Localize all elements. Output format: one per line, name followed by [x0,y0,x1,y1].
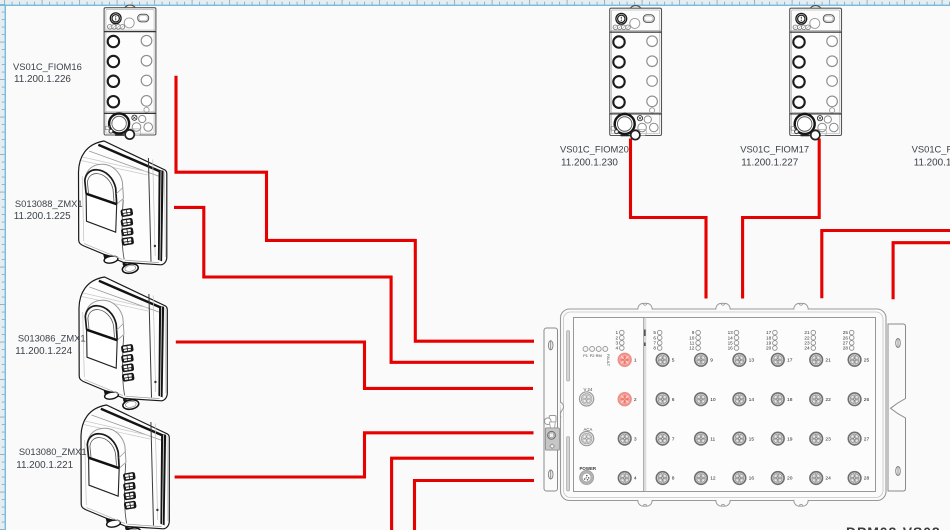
svg-text:P1: P1 [583,353,588,358]
svg-text:6: 6 [672,397,675,403]
svg-text:15: 15 [749,436,755,442]
svg-text:14: 14 [749,397,755,403]
svg-text:VS01C_FIOM20: VS01C_FIOM20 [560,144,629,155]
svg-text:11.200.1.225: 11.200.1.225 [14,211,71,222]
svg-text:1: 1 [634,358,637,364]
svg-text:26: 26 [864,397,870,403]
svg-text:11.200.1.230: 11.200.1.230 [561,158,618,169]
svg-text:20: 20 [766,346,772,351]
svg-text:S013088_ZMX1: S013088_ZMX1 [15,198,83,209]
svg-text:8: 8 [653,346,656,351]
svg-text:28: 28 [843,346,849,351]
svg-text:24: 24 [825,476,831,482]
svg-text:8: 8 [672,476,675,482]
svg-text:16: 16 [728,346,734,351]
svg-text:21: 21 [825,358,831,364]
svg-text:FAULT: FAULT [606,354,611,367]
svg-text:11.200.1.221: 11.200.1.221 [16,460,73,471]
svg-text:27: 27 [864,436,870,442]
svg-text:DPM08-VS08: DPM08-VS08 [846,524,941,530]
svg-text:5: 5 [672,358,675,364]
svg-text:13: 13 [749,358,755,364]
svg-text:11.200.1.227: 11.200.1.227 [741,158,798,169]
svg-text:2: 2 [634,397,637,403]
svg-text:11.200.1.228: 11.200.1.228 [914,158,950,169]
svg-text:17: 17 [787,358,793,364]
svg-text:11: 11 [710,436,715,442]
svg-text:16: 16 [749,476,755,482]
svg-text:28: 28 [864,476,870,482]
svg-text:22: 22 [825,397,831,403]
svg-text:S013080_ZMX1: S013080_ZMX1 [19,446,87,457]
svg-text:7: 7 [672,436,675,442]
svg-text:24: 24 [804,346,810,351]
svg-text:9: 9 [710,358,713,364]
svg-text:20: 20 [787,476,793,482]
svg-text:VS01C_FIOM16: VS01C_FIOM16 [13,61,82,72]
svg-text:VS01C_FIOM17: VS01C_FIOM17 [740,144,809,155]
svg-text:4: 4 [615,346,618,351]
svg-text:25: 25 [864,358,870,364]
svg-text:RM: RM [596,353,602,358]
svg-text:P2: P2 [590,353,595,358]
svg-text:VS01C_FIOM18: VS01C_FIOM18 [912,144,950,155]
svg-text:11.200.1.226: 11.200.1.226 [14,74,71,85]
svg-text:11.200.1.224: 11.200.1.224 [15,346,72,357]
svg-text:19: 19 [787,436,793,442]
svg-text:V 24: V 24 [584,387,593,392]
svg-text:12: 12 [689,346,695,351]
svg-text:3: 3 [634,436,637,442]
svg-text:23: 23 [825,436,831,442]
svg-text:4: 4 [634,476,637,482]
svg-text:10: 10 [710,397,716,403]
svg-text:12: 12 [710,476,716,482]
svg-text:18: 18 [787,397,793,403]
svg-text:S013086_ZMX1: S013086_ZMX1 [18,333,86,344]
